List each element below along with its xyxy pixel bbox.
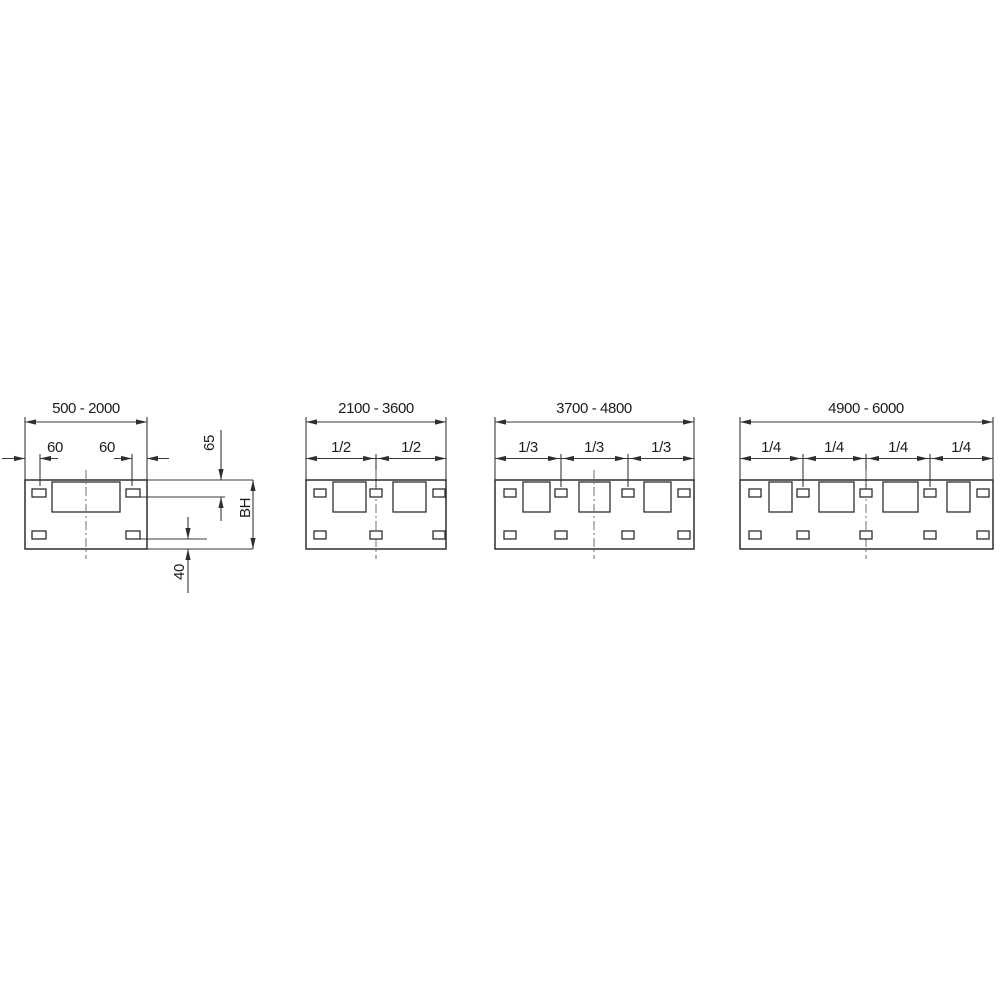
- dim-arrowhead: [147, 456, 158, 461]
- dim-arrowhead: [40, 456, 51, 461]
- slot: [749, 531, 761, 539]
- panel-1: 500 - 2000 60 60 65 BH: [2, 400, 256, 593]
- dimension-drawing: 500 - 2000 60 60 65 BH: [0, 0, 1000, 1000]
- slot: [314, 489, 326, 497]
- slot: [797, 531, 809, 539]
- slot: [504, 531, 516, 539]
- dim-arrowhead: [630, 456, 641, 461]
- slot: [977, 531, 989, 539]
- dim-label-range: 4900 - 6000: [828, 400, 904, 417]
- dim-label-fraction: 1/3: [518, 439, 538, 456]
- slot: [126, 489, 140, 497]
- dim-arrowhead: [185, 528, 190, 539]
- dim-label-range: 500 - 2000: [52, 400, 120, 417]
- dim-arrowhead: [306, 419, 317, 424]
- dim-arrowhead: [548, 456, 559, 461]
- window-opening: [819, 482, 854, 512]
- dim-arrowhead: [378, 456, 389, 461]
- slot: [977, 489, 989, 497]
- slot: [555, 489, 567, 497]
- window-opening: [393, 482, 426, 512]
- slot: [370, 489, 382, 497]
- window-opening: [523, 482, 550, 512]
- dim-arrowhead: [250, 538, 255, 549]
- dim-arrowhead: [306, 456, 317, 461]
- dim-label-inset-bottom: 40: [171, 564, 188, 580]
- dim-arrowhead: [853, 456, 864, 461]
- panel-2: 2100 - 3600 1/2 1/2: [306, 400, 446, 559]
- dim-label-inset-top: 65: [201, 435, 218, 451]
- dim-arrowhead: [435, 419, 446, 424]
- slot: [314, 531, 326, 539]
- dim-arrowhead: [740, 419, 751, 424]
- dim-arrowhead: [250, 480, 255, 491]
- dim-label-offset-right: 60: [99, 439, 115, 456]
- slot: [126, 531, 140, 539]
- dim-label-fraction: 1/4: [824, 439, 844, 456]
- slot: [433, 531, 445, 539]
- dim-arrowhead: [917, 456, 928, 461]
- dim-arrowhead: [121, 456, 132, 461]
- dim-arrowhead: [14, 456, 25, 461]
- panel-3: 3700 - 4800 1/3 1/3 1/3: [495, 400, 694, 559]
- dim-arrowhead: [932, 456, 943, 461]
- panel-4-body: [740, 470, 993, 559]
- slot: [860, 531, 872, 539]
- dim-arrowhead: [218, 469, 223, 480]
- window-opening: [333, 482, 366, 512]
- slot: [504, 489, 516, 497]
- dim-label-offset-left: 60: [47, 439, 63, 456]
- dim-arrowhead: [615, 456, 626, 461]
- dim-label-fraction: 1/4: [888, 439, 908, 456]
- slot: [860, 489, 872, 497]
- dim-arrowhead: [363, 456, 374, 461]
- panel-2-body: [306, 470, 446, 559]
- dim-arrowhead: [435, 456, 446, 461]
- panel-1-body: [25, 470, 147, 559]
- dim-arrowhead: [495, 419, 506, 424]
- window-opening: [883, 482, 918, 512]
- panel-4: 4900 - 6000 1/4 1/4 1/4 1/4: [740, 400, 993, 559]
- dim-arrowhead: [563, 456, 574, 461]
- window-opening: [644, 482, 671, 512]
- slot: [924, 531, 936, 539]
- dim-arrowhead: [495, 456, 506, 461]
- dim-label-fraction: 1/3: [584, 439, 604, 456]
- dim-arrowhead: [218, 497, 223, 508]
- slot: [924, 489, 936, 497]
- dim-arrowhead: [868, 456, 879, 461]
- dim-label-fraction: 1/2: [331, 439, 351, 456]
- dim-arrowhead: [25, 419, 36, 424]
- dim-label-fraction: 1/3: [651, 439, 671, 456]
- slot: [32, 531, 46, 539]
- dim-arrowhead: [740, 456, 751, 461]
- slot: [678, 489, 690, 497]
- dim-label-height: BH: [237, 498, 254, 518]
- dim-arrowhead: [185, 549, 190, 560]
- window-opening: [947, 482, 970, 512]
- dim-arrowhead: [790, 456, 801, 461]
- dim-label-range: 3700 - 4800: [556, 400, 632, 417]
- slot: [32, 489, 46, 497]
- window-opening: [769, 482, 792, 512]
- dim-arrowhead: [136, 419, 147, 424]
- dim-arrowhead: [805, 456, 816, 461]
- slot: [622, 531, 634, 539]
- dim-label-range: 2100 - 3600: [338, 400, 414, 417]
- slot: [622, 489, 634, 497]
- dim-label-fraction: 1/2: [401, 439, 421, 456]
- dim-label-fraction: 1/4: [761, 439, 781, 456]
- dim-arrowhead: [683, 419, 694, 424]
- slot: [433, 489, 445, 497]
- dim-arrowhead: [982, 456, 993, 461]
- slot: [555, 531, 567, 539]
- dimension-drawing-canvas: 500 - 2000 60 60 65 BH: [0, 0, 1000, 1000]
- slot: [678, 531, 690, 539]
- slot: [749, 489, 761, 497]
- panel-3-body: [495, 470, 694, 559]
- dim-arrowhead: [982, 419, 993, 424]
- slot: [370, 531, 382, 539]
- dim-arrowhead: [683, 456, 694, 461]
- dim-label-fraction: 1/4: [951, 439, 971, 456]
- slot: [797, 489, 809, 497]
